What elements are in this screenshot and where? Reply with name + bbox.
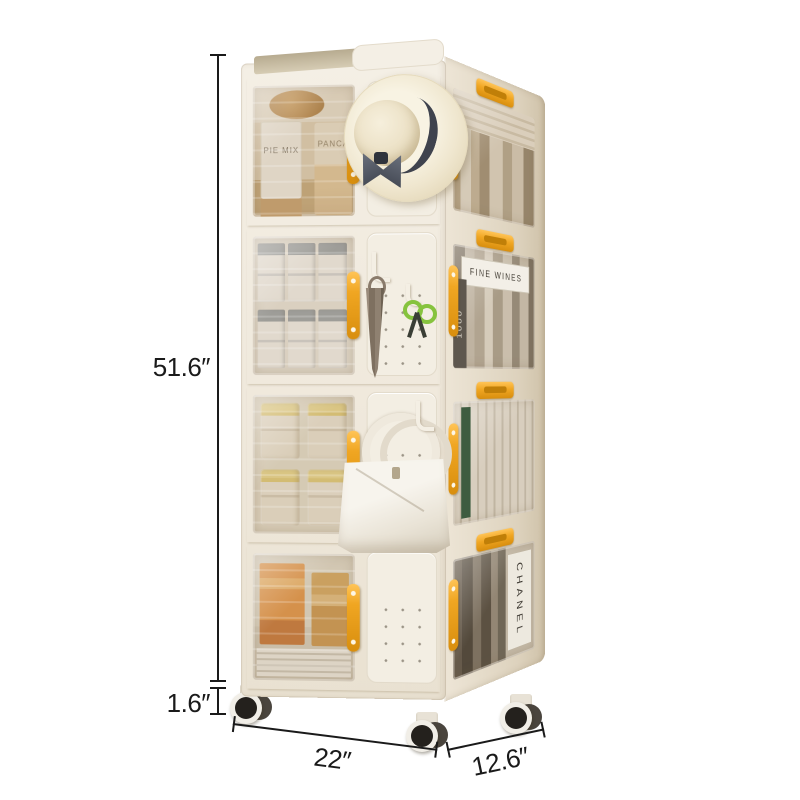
locking-clamp (476, 382, 513, 399)
folded-umbrella (360, 276, 390, 380)
side-door-handle (449, 265, 459, 337)
front-door-handle (347, 272, 360, 340)
green-book-spine (461, 407, 471, 518)
milk-carton (258, 243, 286, 302)
fine-wines-sign: FINE WINES (461, 256, 529, 294)
caster-dimension-line (217, 688, 219, 714)
tier-2-side: FINE WINES 1000 (447, 225, 539, 377)
pie-photo (269, 90, 324, 120)
tier-2-front-door (253, 236, 355, 375)
tier-4-side-door: CHANEL (453, 541, 535, 681)
cereal-box (312, 573, 349, 647)
pegboard-panel (367, 551, 437, 684)
height-label: 51.6″ (128, 352, 210, 383)
hat-bow-knot (374, 152, 388, 164)
product-dimension-image: 51.6″ 1.6″ 22″ 12.6″ (0, 0, 800, 800)
caster-height-label: 1.6″ (136, 688, 210, 719)
tier-3-side-door (453, 399, 535, 526)
umbrella-body (363, 288, 387, 378)
tier-2-side-door: FINE WINES 1000 (453, 244, 535, 370)
height-dimension-line (217, 55, 219, 681)
dimension-tick (210, 713, 226, 715)
chanel-book-spine: CHANEL (508, 549, 531, 651)
side-door-handle (449, 578, 459, 652)
straw-hat (336, 70, 476, 206)
tier-3-side (447, 383, 539, 535)
dimension-tick (210, 680, 226, 682)
scissors (403, 300, 435, 340)
milk-carton (319, 243, 347, 302)
tier-4-front-door (253, 553, 355, 681)
milk-carton (258, 309, 286, 368)
handbag-charm (392, 467, 400, 479)
milk-carton (319, 309, 347, 368)
cereal-box (260, 563, 305, 645)
storage-jar (260, 469, 299, 526)
depth-dimension: 12.6″ (447, 728, 544, 749)
storage-jar (260, 403, 299, 460)
pie-mix-package: PIE MIX (261, 121, 302, 217)
front-door-handle (347, 584, 360, 652)
wall-hook (416, 401, 434, 431)
handbag (336, 405, 454, 555)
caster-wheel-front (500, 702, 532, 734)
milk-carton (288, 309, 316, 368)
tier-4-front (247, 544, 440, 692)
depth-label: 12.6″ (449, 736, 552, 787)
magazine-stack (257, 648, 351, 677)
tier-4-side: CHANEL (447, 524, 539, 691)
milk-carton (288, 243, 316, 302)
pegboard-holes (378, 602, 427, 673)
